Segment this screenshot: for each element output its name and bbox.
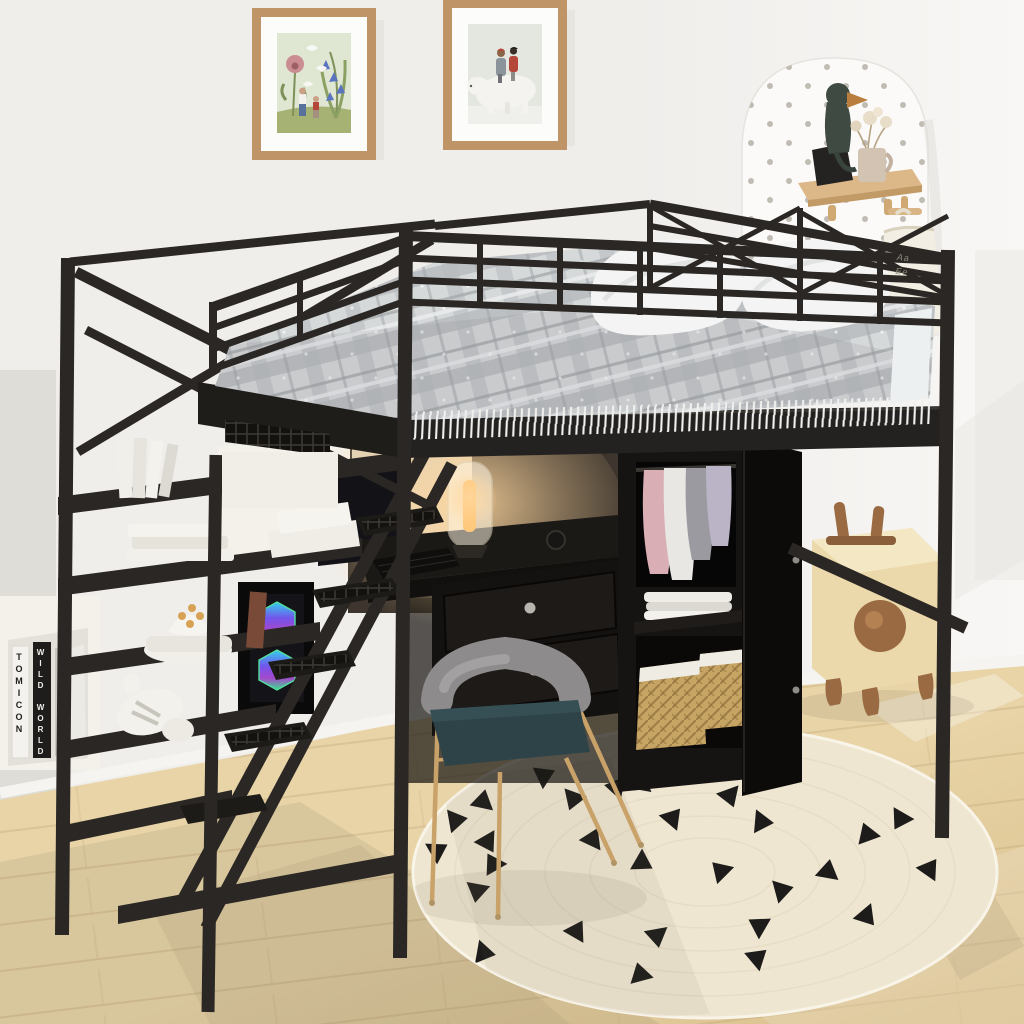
book-wild-world [33, 642, 51, 758]
chair-shadow [403, 870, 647, 926]
wicker-basket-large [636, 660, 706, 750]
wardrobe [618, 428, 802, 796]
scene-room: TOMICON WILD WORLD Aa Ee [0, 0, 1024, 1024]
wardrobe-door-open [742, 438, 802, 796]
mid-support-post [208, 455, 216, 1012]
drawer-knob [525, 603, 536, 614]
framed-art-flowers [252, 8, 384, 160]
bed-post-right [942, 250, 948, 838]
art2-wall-shadow [567, 10, 575, 146]
book-tomicon [12, 646, 29, 758]
left-post [62, 258, 68, 935]
underdeck-drawer [222, 452, 338, 508]
desk-speaker [547, 531, 565, 549]
door-hinge [793, 687, 800, 694]
art1-wall-shadow [376, 20, 384, 160]
scene-canvas [0, 0, 1024, 1024]
bed-post-front-left [400, 228, 406, 958]
framed-art-polar-bear [443, 0, 575, 150]
